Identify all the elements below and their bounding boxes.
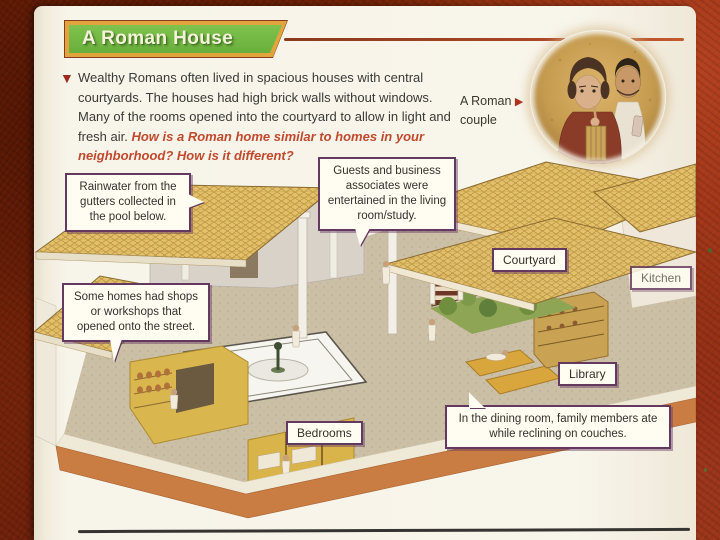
callout-pointer: [188, 194, 204, 208]
callout-shops: Some homes had shops or workshops that o…: [62, 283, 210, 342]
page-title: A Roman House: [69, 28, 233, 50]
label-bedrooms: Bedrooms: [286, 421, 363, 445]
caption-arrow-icon: ▶: [515, 96, 523, 108]
callout-pointer: [469, 392, 485, 408]
section-bullet-icon: ▼: [60, 70, 74, 86]
label-library: Library: [558, 362, 617, 386]
textbook-page: A Roman House ▼ Wealthy Romans often liv…: [34, 6, 696, 540]
photo-caption-line2: couple: [460, 113, 497, 127]
callout-pointer: [355, 228, 370, 246]
label-kitchen: Kitchen: [630, 266, 692, 290]
roman-couple-photo: [530, 30, 666, 164]
label-courtyard: Courtyard: [492, 248, 567, 272]
intro-paragraph: Wealthy Romans often lived in spacious h…: [78, 68, 464, 166]
frame-texture-fleck: [704, 468, 707, 472]
section-title-banner: A Roman House: [64, 20, 288, 58]
frame-texture-fleck: [708, 248, 712, 253]
callout-dining-room: In the dining room, family members ate w…: [445, 405, 671, 449]
callout-pointer: [110, 339, 122, 362]
photo-caption-line1: A Roman: [460, 94, 511, 108]
slide-photo-frame: A Roman House ▼ Wealthy Romans often liv…: [0, 0, 720, 540]
callout-rainwater: Rainwater from the gutters collected in …: [65, 173, 191, 232]
callout-living-room: Guests and business associates were ente…: [318, 157, 456, 231]
